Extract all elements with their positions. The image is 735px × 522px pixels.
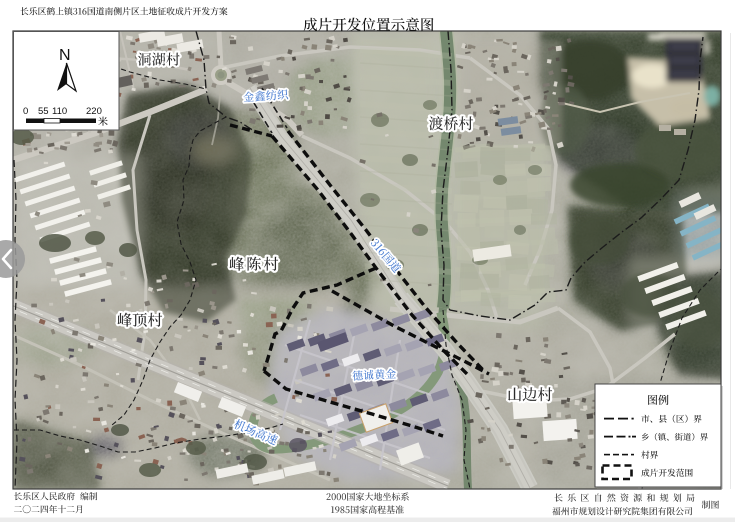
svg-text:N: N [59,47,71,64]
svg-text:55: 55 [38,106,49,117]
svg-text:0: 0 [23,106,28,117]
svg-text:220: 220 [86,106,102,117]
svg-text:110: 110 [52,106,67,117]
